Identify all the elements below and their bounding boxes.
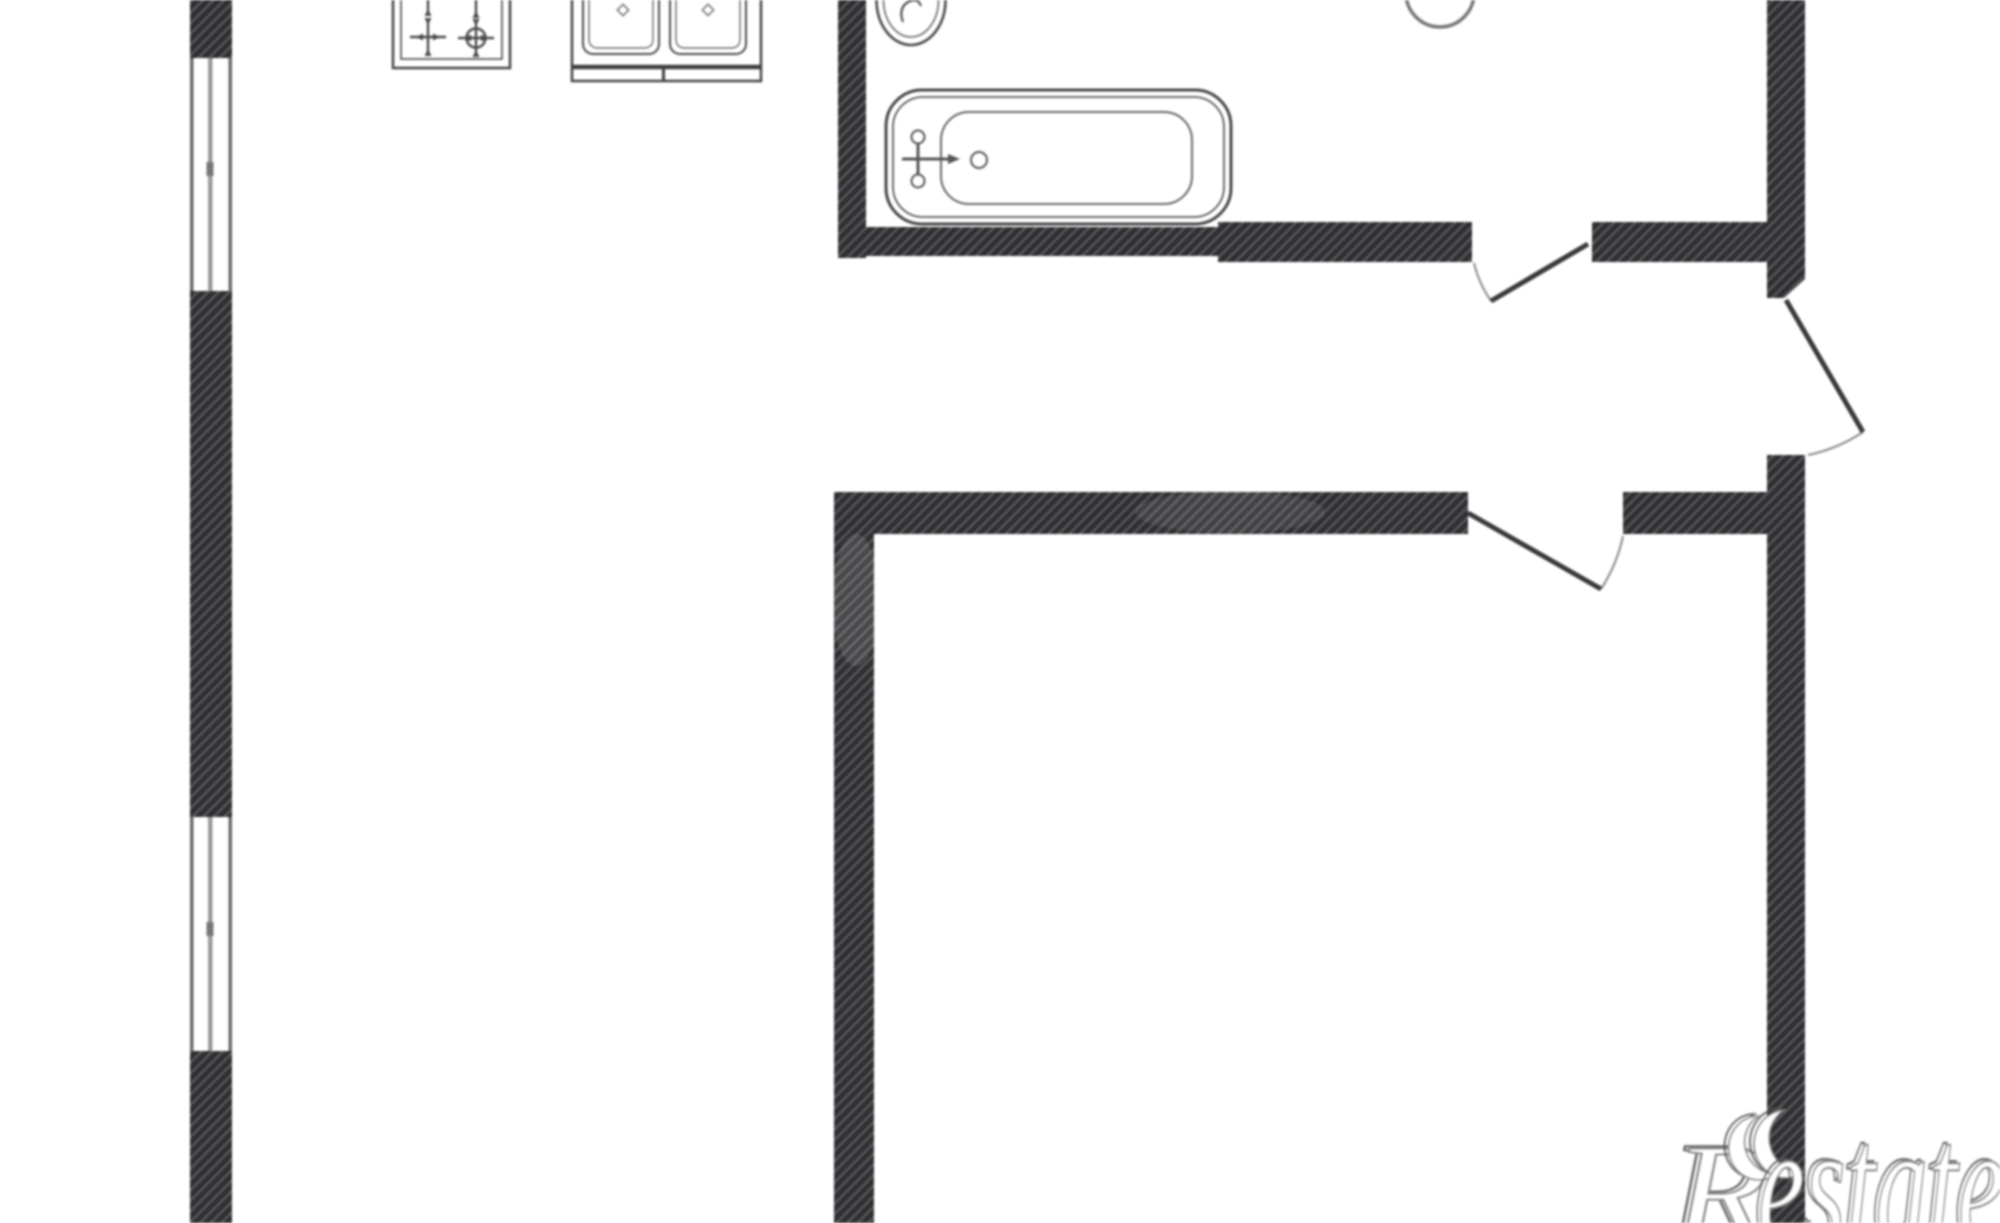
svg-text:estate: estate (1758, 1087, 2000, 1223)
